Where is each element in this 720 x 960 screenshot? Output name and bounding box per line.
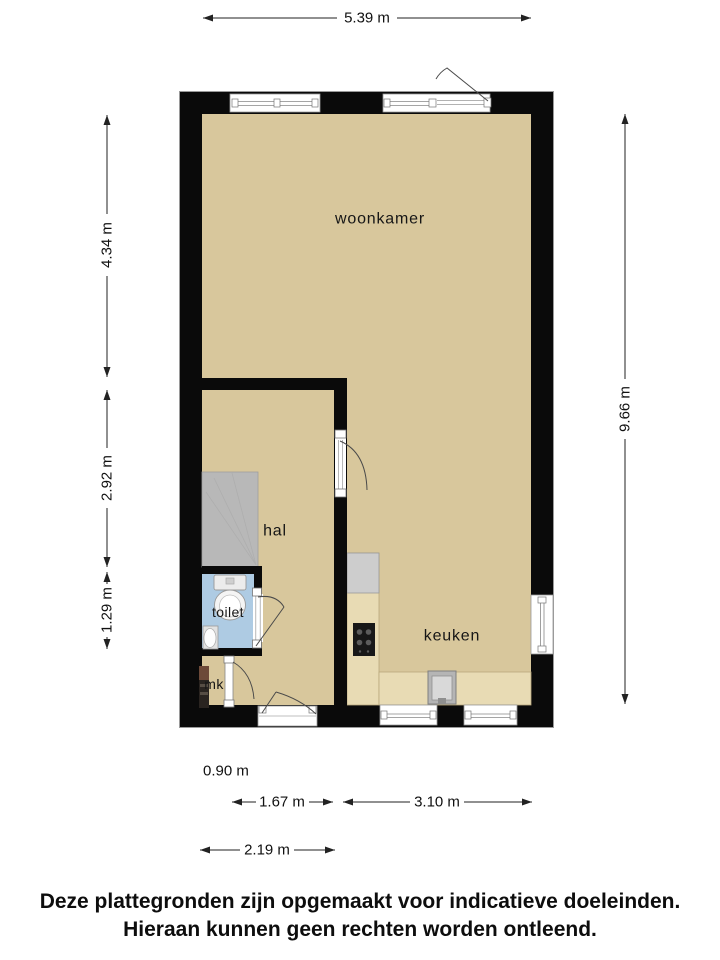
room-label-woonkamer: woonkamer [334, 211, 425, 228]
toilet-wall-top [202, 566, 262, 574]
svg-text:5.39 m: 5.39 m [344, 10, 390, 27]
kitchen-sink-icon [428, 671, 456, 704]
cooktop-icon [353, 623, 375, 656]
interior-wall-horizontal [202, 378, 347, 390]
dimension-top-width: 5.39 m [203, 7, 531, 28]
interior-wall-vertical [334, 378, 347, 706]
svg-text:1.29 m: 1.29 m [99, 587, 116, 633]
dimension-bottom-hal-total: 2.19 m [200, 839, 335, 860]
dimension-left-middle: 2.92 m [97, 390, 117, 567]
room-label-keuken: keuken [424, 628, 480, 645]
dimension-bottom-keuken: 3.10 m [343, 791, 532, 812]
window-bottom-left [380, 705, 437, 725]
floor-plan-page: woonkamer hal keuken toilet mk 5.39 m 4.… [0, 0, 720, 960]
svg-text:4.34 m: 4.34 m [99, 222, 116, 268]
dimension-left-lower: 1.29 m [97, 572, 117, 649]
dimension-bottom-mk: 0.90 m [203, 763, 249, 780]
window-top-left [230, 94, 320, 112]
svg-text:9.66 m: 9.66 m [617, 386, 634, 432]
svg-text:2.92 m: 2.92 m [99, 455, 116, 501]
dimension-right-height: 9.66 m [615, 114, 635, 704]
svg-text:1.67 m: 1.67 m [259, 794, 305, 811]
dimension-left-upper: 4.34 m [97, 115, 117, 377]
disclaimer-line-2: Hieraan kunnen geen rechten worden ontle… [0, 916, 720, 944]
dimension-bottom-hal: 1.67 m [232, 791, 333, 812]
room-label-toilet: toilet [212, 604, 244, 620]
stairs-icon [202, 472, 258, 567]
svg-text:3.10 m: 3.10 m [414, 794, 460, 811]
disclaimer: Deze plattegronden zijn opgemaakt voor i… [0, 888, 720, 944]
disclaimer-line-1: Deze plattegronden zijn opgemaakt voor i… [0, 888, 720, 916]
window-and-door-top-right [383, 68, 491, 112]
window-right [531, 595, 553, 654]
kitchen-appliance-icon [347, 553, 379, 593]
room-label-hal: hal [263, 523, 287, 540]
hand-basin-icon [203, 626, 218, 649]
svg-text:2.19 m: 2.19 m [244, 842, 290, 859]
window-bottom-right [464, 705, 517, 725]
room-label-mk: mk [204, 676, 224, 692]
floor-plan: woonkamer hal keuken toilet mk 5.39 m 4.… [0, 0, 720, 960]
